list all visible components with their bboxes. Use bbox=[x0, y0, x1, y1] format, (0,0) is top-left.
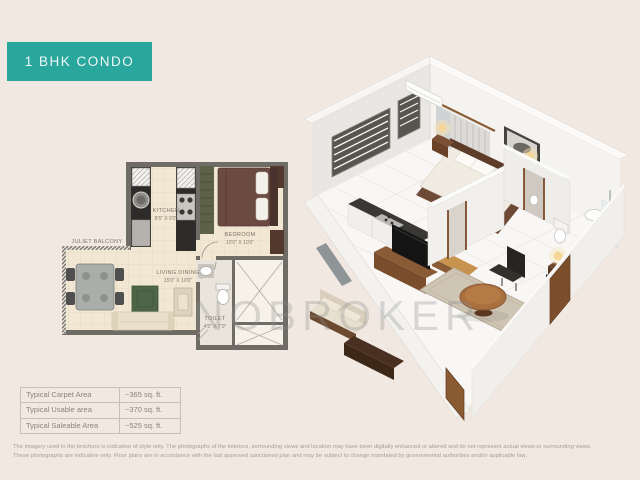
sofa-3d bbox=[310, 289, 366, 342]
living-dims: 15'0" X 10'0" bbox=[164, 278, 192, 284]
title-badge-label: 1 BHK CONDO bbox=[25, 54, 135, 69]
dining-table-3d bbox=[457, 284, 509, 322]
disclaimer-text: The imagery used in the brochure is indi… bbox=[13, 443, 628, 460]
bedroom-label: BEDROOM bbox=[224, 232, 255, 238]
balcony-railing-top bbox=[62, 246, 130, 250]
disclaimer-line-1: The imagery used in the brochure is indi… bbox=[13, 443, 628, 452]
kitchen-label: KITCHEN bbox=[153, 208, 180, 214]
usable-area-value: ~370 sq. ft. bbox=[120, 403, 181, 418]
disclaimer-line-2: These photographs are indicative only. F… bbox=[13, 452, 628, 461]
balcony-label: JULIET BALCONY bbox=[71, 239, 122, 245]
brochure-page: 1 BHK CONDO bbox=[0, 0, 640, 480]
living-label: LIVING DINING bbox=[156, 270, 199, 276]
floorplan-3d bbox=[302, 50, 638, 422]
kitchen-dims: 8'6" X 9'2" bbox=[155, 216, 178, 222]
toilet-label: TOILET bbox=[204, 316, 226, 322]
table-row: Typical Usable area ~370 sq. ft. bbox=[21, 403, 181, 418]
saleable-area-value: ~525 sq. ft. bbox=[120, 418, 181, 433]
title-badge: 1 BHK CONDO bbox=[7, 42, 152, 81]
console-table-3d bbox=[344, 336, 404, 380]
carpet-area-value: ~365 sq. ft. bbox=[120, 388, 181, 403]
floorplan-2d: KITCHEN 8'6" X 9'2" BEDROOM 10'0" X 10'0… bbox=[56, 156, 296, 354]
table-row: Typical Carpet Area ~365 sq. ft. bbox=[21, 388, 181, 403]
carpet-area-label: Typical Carpet Area bbox=[21, 388, 120, 403]
area-table: Typical Carpet Area ~365 sq. ft. Typical… bbox=[20, 387, 181, 434]
saleable-area-label: Typical Saleable Area bbox=[21, 418, 120, 433]
balcony-railing-left bbox=[62, 246, 66, 334]
usable-area-label: Typical Usable area bbox=[21, 403, 120, 418]
bedroom-dims: 10'0" X 10'0" bbox=[226, 240, 254, 246]
toilet-dims: 4'5" X 7'0" bbox=[204, 324, 227, 330]
table-row: Typical Saleable Area ~525 sq. ft. bbox=[21, 418, 181, 433]
